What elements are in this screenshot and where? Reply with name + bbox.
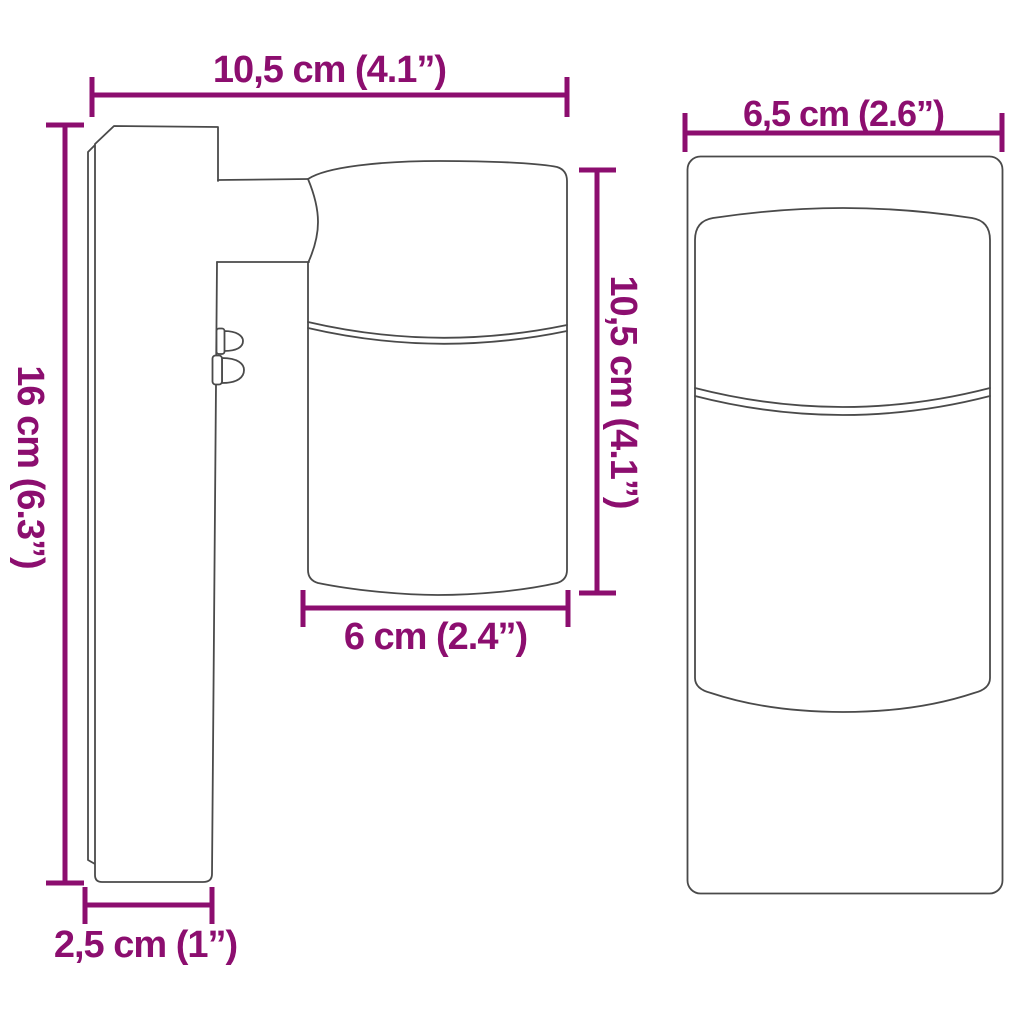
dim-plate-depth — [85, 887, 212, 924]
front-view — [688, 157, 1003, 894]
side-wall-plate-back-edge — [88, 145, 95, 864]
side-view — [88, 126, 567, 882]
head-height-label: 10,5 cm (4.1”) — [601, 172, 645, 612]
overall-height-label: 16 cm (6.3”) — [8, 247, 52, 687]
plate-depth-label: 2,5 cm (1”) — [28, 923, 263, 967]
side-arm-top-edge — [218, 179, 308, 180]
front-lamp-head — [695, 208, 990, 712]
front-width-label: 6,5 cm (2.6”) — [685, 92, 1002, 136]
head-diameter-label: 6 cm (2.4”) — [303, 615, 568, 659]
clip-tab-bottom — [213, 356, 223, 385]
lamp-technical-drawing — [0, 0, 1024, 1024]
overall-depth-label: 10,5 cm (4.1”) — [92, 48, 567, 92]
clip-tab-top — [217, 329, 225, 355]
dimension-diagram: 10,5 cm (4.1”) 16 cm (6.3”) 10,5 cm (4.1… — [0, 0, 1024, 1024]
clip-knob-top — [224, 331, 243, 351]
side-wall-plate — [95, 126, 218, 882]
clip-knob-bottom — [222, 358, 244, 383]
side-lamp-head — [308, 161, 567, 595]
